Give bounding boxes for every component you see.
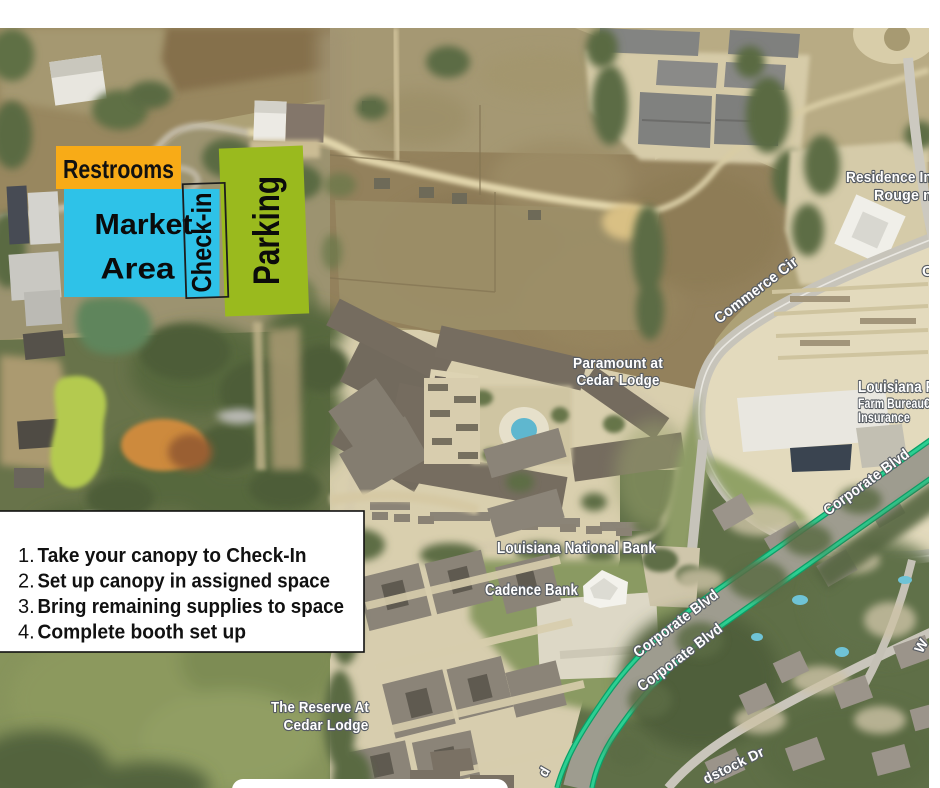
svg-text:Insurance: Insurance bbox=[858, 410, 910, 425]
svg-text:Market: Market bbox=[95, 209, 193, 241]
svg-text:3.: 3. bbox=[18, 596, 35, 618]
svg-text:Residence In: Residence In bbox=[846, 169, 932, 186]
svg-text:Cadence Bank: Cadence Bank bbox=[485, 582, 578, 599]
svg-text:Bring remaining supplies to sp: Bring remaining supplies to space bbox=[38, 596, 345, 618]
svg-text:4.: 4. bbox=[18, 622, 35, 644]
svg-text:2.: 2. bbox=[18, 571, 35, 593]
svg-text:Parking: Parking bbox=[246, 176, 287, 285]
svg-text:Complete booth set up: Complete booth set up bbox=[38, 622, 247, 644]
svg-text:Area: Area bbox=[101, 253, 175, 286]
svg-text:Take your canopy to Check-In: Take your canopy to Check-In bbox=[38, 545, 307, 567]
svg-text:Cedar Lodge: Cedar Lodge bbox=[577, 373, 660, 389]
svg-text:1.: 1. bbox=[18, 545, 35, 567]
svg-text:Restrooms: Restrooms bbox=[63, 154, 174, 184]
svg-text:The Reserve At: The Reserve At bbox=[271, 699, 369, 716]
svg-text:Louisiana F: Louisiana F bbox=[858, 379, 934, 396]
svg-text:Check-in: Check-in bbox=[186, 193, 217, 293]
svg-text:Set up canopy in assigned spac: Set up canopy in assigned space bbox=[38, 571, 331, 593]
svg-text:Farm Bureau€: Farm Bureau€ bbox=[858, 396, 930, 411]
svg-text:Rouge n: Rouge n bbox=[874, 187, 932, 204]
svg-text:Louisiana National Bank: Louisiana National Bank bbox=[497, 540, 656, 557]
svg-text:Paramount at: Paramount at bbox=[573, 356, 663, 372]
svg-text:Cedar Lodge: Cedar Lodge bbox=[284, 717, 369, 734]
